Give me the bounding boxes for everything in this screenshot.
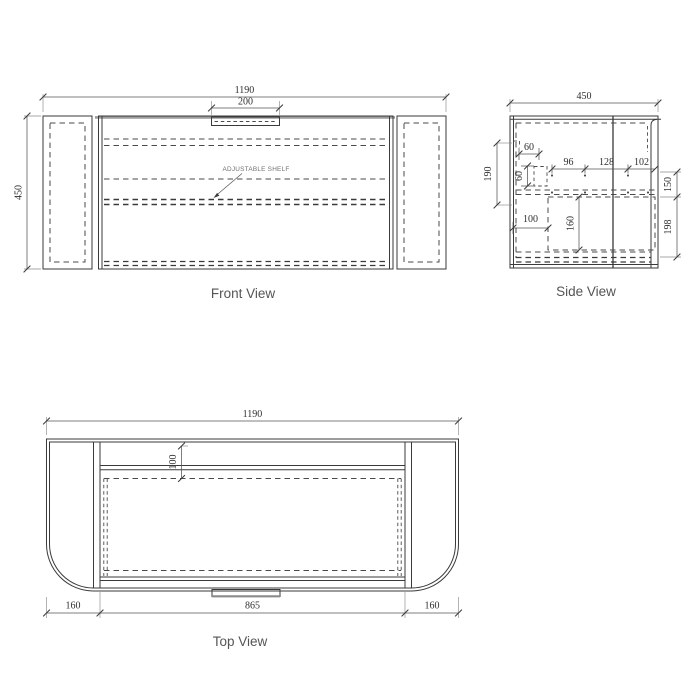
shelf-pin-holes [551, 175, 649, 194]
dim-side-inset: 100 [523, 214, 538, 225]
dim-side-lower-right: 198 [663, 220, 674, 235]
dim-top-depth: 100 [168, 455, 179, 470]
adjustable-shelf-callout: ADJUSTABLE SHELF [214, 166, 290, 198]
adjustable-shelf-label: ADJUSTABLE SHELF [222, 166, 289, 173]
dim-side-back: 190 [483, 167, 494, 182]
dim-top-right: 160 [425, 601, 440, 612]
dim-side-bracket-height: 60 [514, 171, 525, 181]
dim-side-span1: 96 [564, 157, 574, 168]
dim-side-span3: 102 [634, 157, 649, 168]
front-view: 1190 200 450 ADJUSTABLE SHELF Front View [14, 85, 450, 301]
dim-side-span2: 128 [599, 157, 614, 168]
dim-side-upper-right: 150 [663, 177, 674, 192]
side-view-caption: Side View [556, 284, 616, 299]
dim-top-left: 160 [66, 601, 81, 612]
dim-side-drawer-height: 160 [566, 216, 577, 231]
dim-front-handle: 200 [238, 97, 253, 108]
dim-front-width: 1190 [235, 85, 255, 96]
dim-front-height: 450 [14, 185, 25, 200]
dim-side-bracket-width: 60 [524, 142, 534, 153]
front-view-hidden-lines [50, 123, 439, 266]
top-view-caption: Top View [213, 634, 268, 649]
top-view-dimensions: 1190 100 160 865 160 [43, 409, 462, 618]
top-view-hidden-lines [104, 479, 401, 577]
top-view: 1190 100 160 865 160 Top View [43, 409, 462, 649]
dim-top-width: 1190 [243, 409, 263, 420]
front-view-caption: Front View [211, 286, 276, 301]
technical-drawing-canvas: 1190 200 450 ADJUSTABLE SHELF Front View [0, 0, 700, 700]
top-view-outline [47, 439, 459, 597]
dim-top-opening: 865 [245, 601, 260, 612]
side-view-hidden-lines [514, 123, 656, 262]
front-view-outline [43, 116, 446, 269]
side-view: 450 190 60 60 96 128 102 [483, 91, 681, 299]
dim-side-width: 450 [577, 91, 592, 102]
